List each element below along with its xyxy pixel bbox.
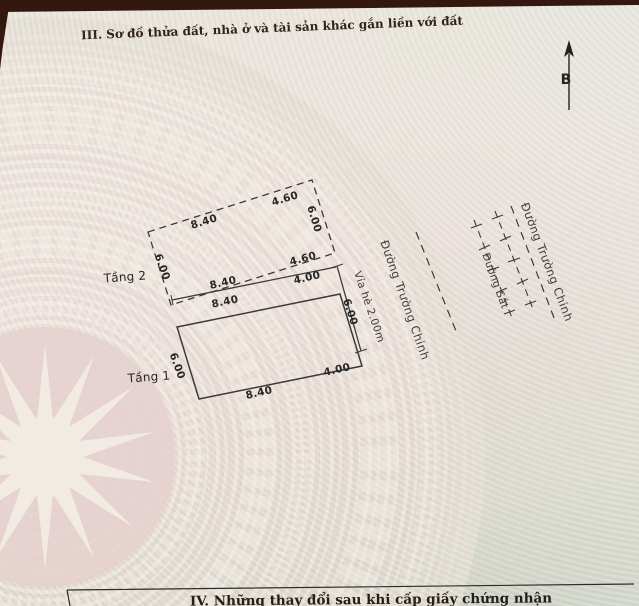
north-label: B <box>561 72 572 88</box>
land-diagram-canvas <box>0 0 639 606</box>
section-iv-title: IV. Những thay đổi sau khi cấp giấy chứn… <box>190 590 552 606</box>
dong-son-drum-watermark <box>0 42 460 606</box>
floor1-name-label: Tầng 1 <box>127 369 170 386</box>
floor2-name-label: Tầng 2 <box>103 269 146 286</box>
certificate-page-photo: III. Sơ đồ thửa đất, nhà ở và tài sản kh… <box>0 0 639 606</box>
